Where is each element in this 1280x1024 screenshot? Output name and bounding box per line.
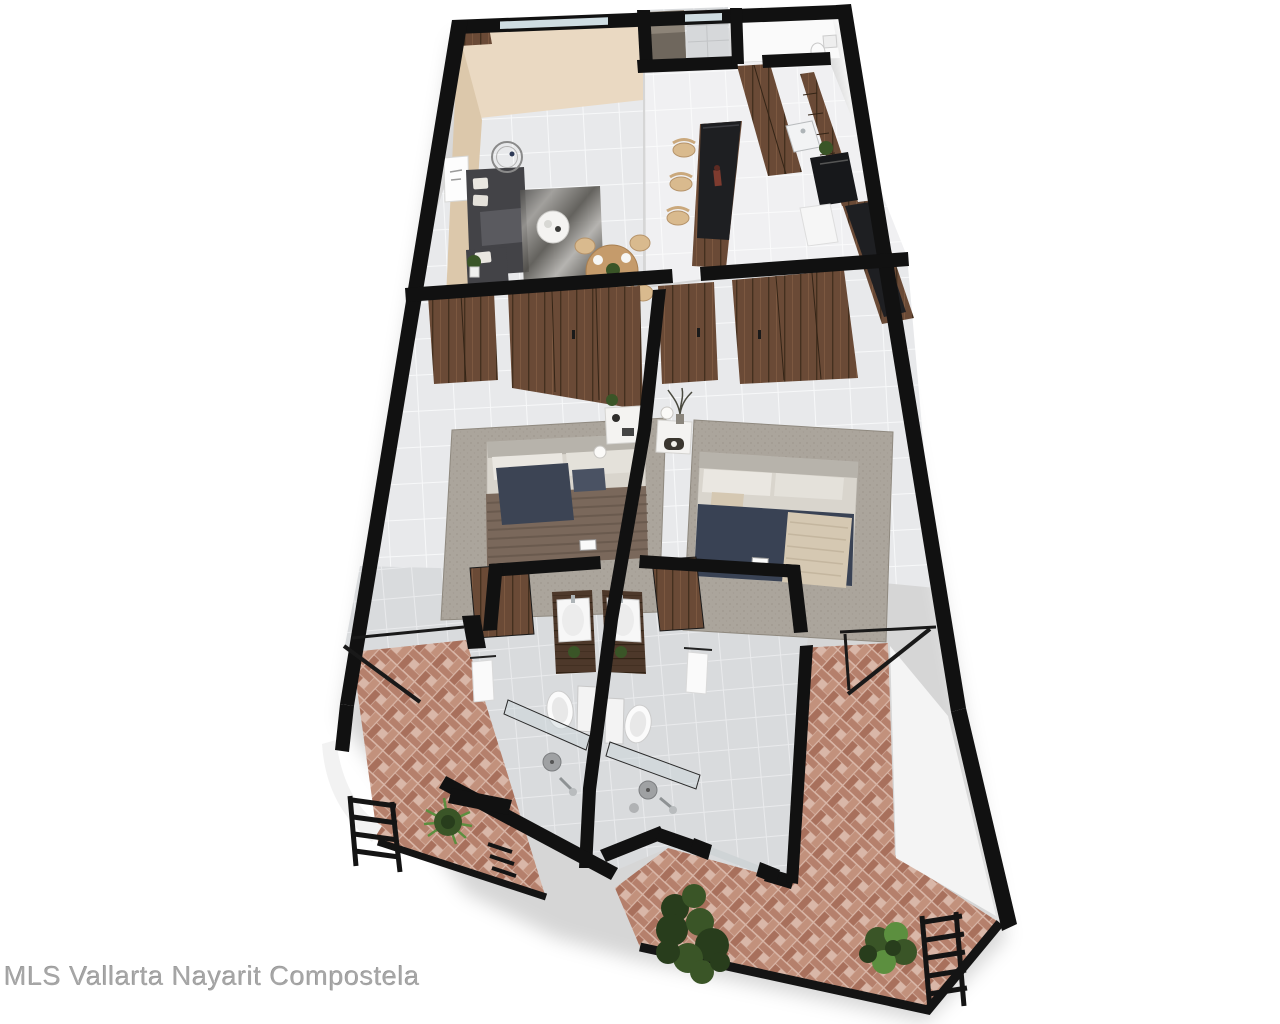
- half-bath-wall-v: [730, 8, 744, 64]
- wardrobe: [658, 282, 718, 384]
- watermark: MLS Vallarta Nayarit Compostela: [4, 961, 420, 992]
- faucet-left: [571, 595, 575, 603]
- vanity-plant: [568, 646, 580, 658]
- sink-left-basin: [562, 604, 584, 636]
- wardrobe-wide: [732, 270, 858, 384]
- accent-pillow: [572, 468, 606, 492]
- bedside-lamp: [594, 446, 606, 458]
- dining-chair: [630, 235, 650, 251]
- toilet-tank: [605, 698, 624, 744]
- nightstand-book: [622, 428, 634, 436]
- figurine-head: [714, 165, 720, 171]
- dining-chair: [575, 238, 595, 254]
- branch-vase: [676, 414, 684, 424]
- bar-stool: [667, 211, 689, 225]
- faucet: [801, 129, 806, 134]
- window: [685, 13, 722, 22]
- bar-stool: [670, 177, 692, 191]
- wardrobe-handle: [697, 328, 700, 337]
- shower-head-disc: [569, 788, 577, 796]
- coffee-table: [537, 211, 569, 243]
- floor-plan-page: MLS Vallarta Nayarit Compostela: [0, 0, 1280, 1024]
- bedside-lamp: [661, 407, 673, 419]
- kitchen-plant: [819, 141, 833, 155]
- dining-plate: [593, 255, 603, 265]
- coffee-table-plate: [544, 220, 552, 228]
- magazine: [580, 540, 597, 551]
- navy-throw: [496, 463, 574, 525]
- outer-wall-left-low: [335, 704, 354, 752]
- utility-cabinet-front: [650, 32, 686, 60]
- shower-head-disc: [669, 806, 677, 814]
- living-plant-pot: [470, 267, 479, 277]
- bar-stool: [673, 143, 695, 157]
- dining-plate: [621, 253, 631, 263]
- vanity-plant: [615, 646, 627, 658]
- sofa-pillow: [473, 177, 489, 189]
- shower-drain-dot: [646, 788, 650, 792]
- sofa-pillow: [473, 195, 489, 207]
- half-bath-tank: [823, 35, 837, 48]
- towel: [686, 652, 708, 694]
- nightstand-vase: [612, 414, 620, 422]
- pillow: [702, 469, 772, 496]
- wardrobe-handle: [758, 330, 761, 339]
- nightstand-plant: [606, 394, 618, 406]
- sofa-throw: [480, 208, 523, 246]
- floor-drain: [629, 803, 639, 813]
- shower-drain-dot: [550, 760, 554, 764]
- coffee-table-vase: [555, 226, 561, 232]
- towel: [472, 660, 494, 702]
- wardrobe-handle: [572, 330, 575, 339]
- side-table-decor: [510, 152, 515, 157]
- floor-plan-render: [0, 0, 1280, 1024]
- coffee-cup: [671, 441, 677, 447]
